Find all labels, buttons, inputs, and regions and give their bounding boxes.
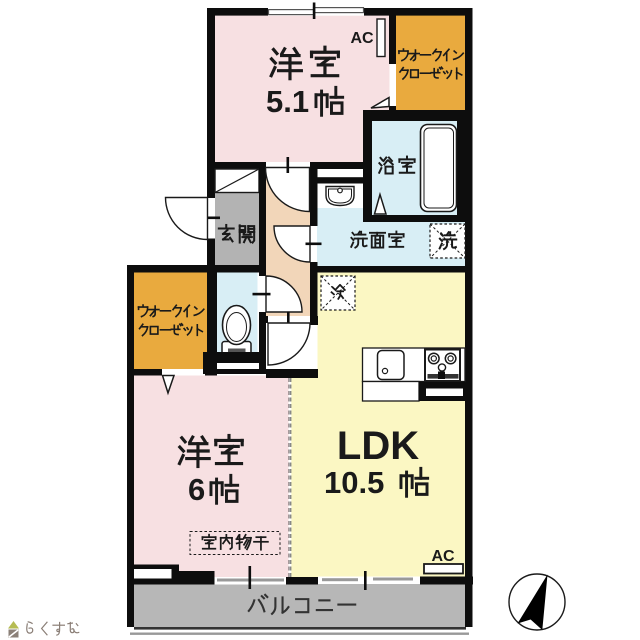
svg-text:10.5: 10.5 (324, 465, 384, 500)
svg-text:AC: AC (431, 548, 455, 565)
svg-text:AC: AC (350, 30, 374, 47)
svg-text:LDK: LDK (337, 424, 419, 468)
svg-text:5.1: 5.1 (266, 84, 309, 119)
svg-text:6: 6 (188, 472, 205, 507)
